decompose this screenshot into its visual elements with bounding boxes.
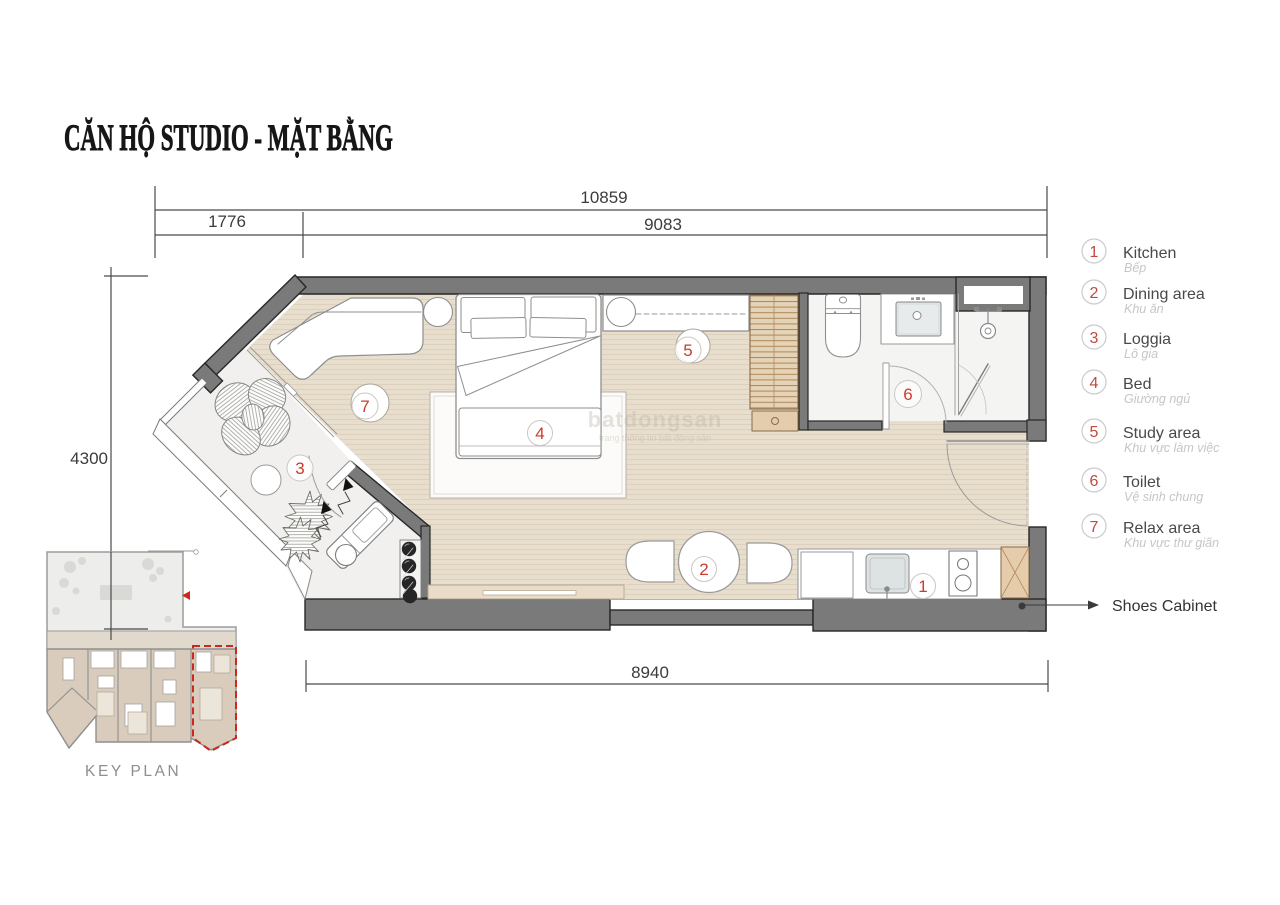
svg-text:Dining area: Dining area — [1123, 286, 1205, 303]
svg-text:batdongsan: batdongsan — [588, 407, 723, 432]
svg-text:Vệ sinh chung: Vệ sinh chung — [1124, 490, 1203, 504]
svg-text:3: 3 — [295, 459, 304, 478]
svg-text:trang thông tin bất động sản: trang thông tin bất động sản — [599, 433, 711, 443]
svg-text:10859: 10859 — [580, 188, 627, 207]
svg-text:Khu vực làm việc: Khu vực làm việc — [1124, 441, 1220, 455]
svg-text:8940: 8940 — [631, 663, 669, 682]
svg-text:6: 6 — [903, 385, 912, 404]
svg-text:Kitchen: Kitchen — [1123, 245, 1176, 262]
svg-text:Loggia: Loggia — [1123, 331, 1171, 348]
svg-text:5: 5 — [683, 341, 692, 360]
svg-text:Giường ngủ: Giường ngủ — [1124, 392, 1190, 406]
svg-text:1: 1 — [1090, 244, 1099, 261]
svg-text:4: 4 — [1090, 375, 1099, 392]
svg-text:Study area: Study area — [1123, 425, 1200, 442]
svg-text:2: 2 — [699, 560, 708, 579]
svg-text:7: 7 — [1090, 519, 1099, 536]
svg-text:Bed: Bed — [1123, 376, 1151, 393]
svg-text:3: 3 — [1090, 330, 1099, 347]
svg-text:CĂN HỘ STUDIO - MẶT BẰNG: CĂN HỘ STUDIO - MẶT BẰNG — [64, 115, 393, 158]
svg-text:4: 4 — [535, 424, 544, 443]
svg-text:KEY PLAN: KEY PLAN — [85, 763, 181, 780]
svg-text:4300: 4300 — [70, 449, 108, 468]
svg-text:6: 6 — [1090, 473, 1099, 490]
svg-text:1: 1 — [918, 577, 927, 596]
svg-text:Khu vực thư giãn: Khu vực thư giãn — [1124, 536, 1219, 550]
svg-text:9083: 9083 — [644, 215, 682, 234]
svg-text:Bếp: Bếp — [1124, 261, 1146, 275]
svg-text:7: 7 — [360, 397, 369, 416]
svg-text:Khu ăn: Khu ăn — [1124, 302, 1164, 316]
svg-text:5: 5 — [1090, 424, 1099, 441]
svg-text:Relax area: Relax area — [1123, 520, 1200, 537]
svg-text:2: 2 — [1090, 285, 1099, 302]
svg-text:Toilet: Toilet — [1123, 474, 1161, 491]
svg-text:Lô gia: Lô gia — [1124, 347, 1158, 361]
svg-text:1776: 1776 — [208, 212, 246, 231]
svg-text:Shoes Cabinet: Shoes Cabinet — [1112, 598, 1218, 615]
